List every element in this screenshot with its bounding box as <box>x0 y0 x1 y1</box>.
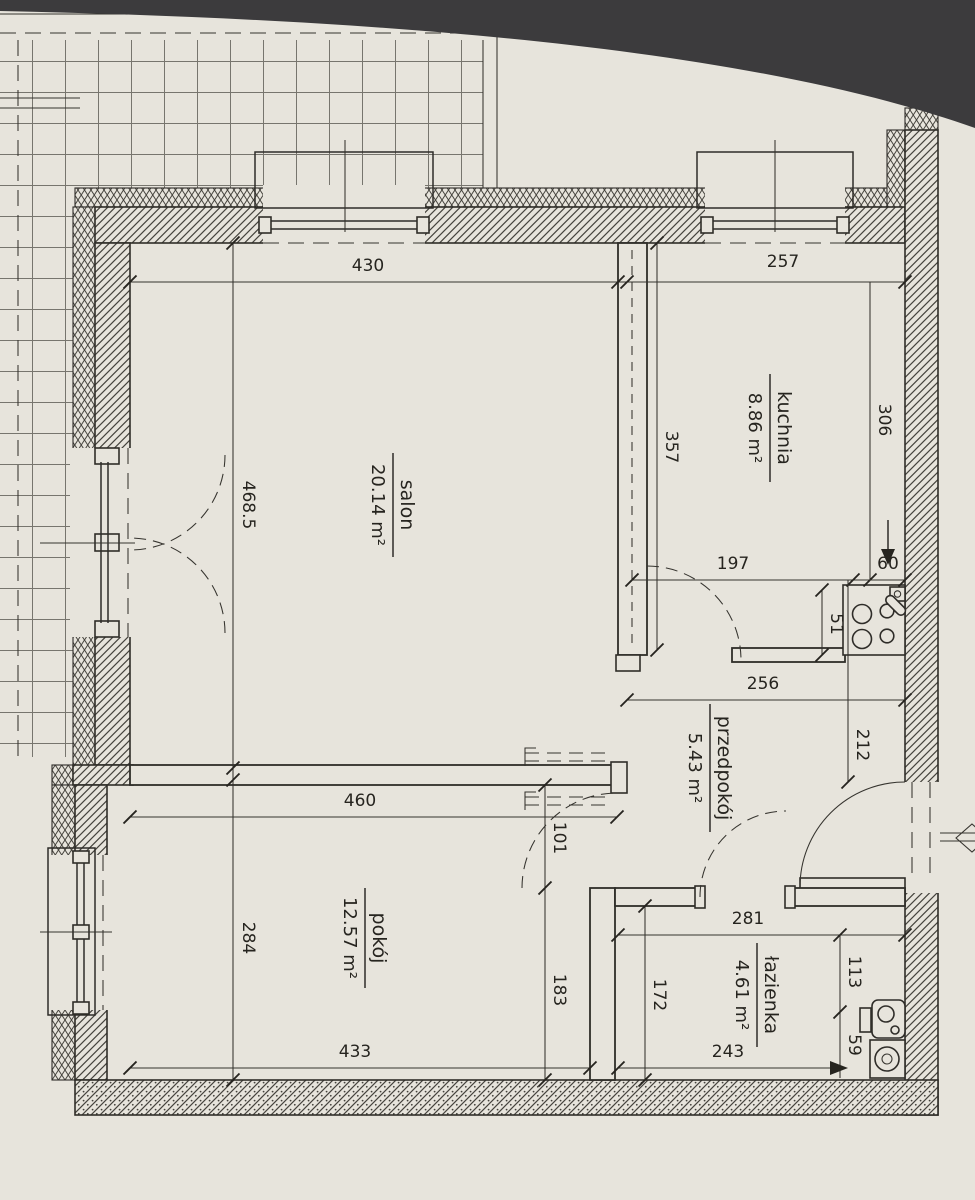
dim-label-468-5: 468.5 <box>238 481 258 530</box>
floor-plan-photo: 430 257 306 357 468.5 284 460 <box>0 0 975 1200</box>
dim-label-183: 183 <box>549 974 569 1006</box>
room-area: 8.86 m² <box>744 393 765 464</box>
wall-bottom <box>75 1080 938 1115</box>
washing-machine-icon <box>870 1040 905 1078</box>
dim-label-101: 101 <box>549 822 569 854</box>
room-name: łazienka <box>760 956 782 1034</box>
room-area: 20.14 m² <box>367 464 388 546</box>
dim-label-51: 51 <box>826 613 846 635</box>
room-name: przedpokój <box>713 716 735 821</box>
dim-label-284: 284 <box>238 922 258 954</box>
room-area: 12.57 m² <box>339 897 360 979</box>
wall-pokoj-lazienka <box>590 888 615 1080</box>
dim-label-59: 59 <box>844 1034 864 1056</box>
dim-label-430: 430 <box>352 256 384 276</box>
room-area: 4.61 m² <box>731 960 752 1031</box>
floor-plan-canvas: 430 257 306 357 468.5 284 460 <box>0 0 975 1200</box>
dim-label-306: 306 <box>874 404 894 436</box>
dim-label-357: 357 <box>661 431 681 463</box>
wall-lazienka-right-seg <box>790 888 905 906</box>
wall-left-junction <box>73 765 133 785</box>
dim-label-257: 257 <box>767 252 799 272</box>
dim-label-433: 433 <box>339 1042 371 1062</box>
dim-label-172: 172 <box>649 979 669 1011</box>
dim-label-281: 281 <box>732 909 764 929</box>
pokoj-window <box>40 848 112 1015</box>
room-name: kuchnia <box>773 391 795 465</box>
dim-label-113: 113 <box>844 956 864 988</box>
wall-salon-pokoj <box>130 765 617 785</box>
kitchen-counter <box>843 585 907 655</box>
wall-lazienka-left-seg <box>615 888 700 906</box>
dim-label-243: 243 <box>712 1042 744 1062</box>
dim-label-197: 197 <box>717 554 749 574</box>
room-area: 5.43 m² <box>684 733 705 804</box>
dim-label-460: 460 <box>344 791 376 811</box>
room-name: pokój <box>368 913 390 964</box>
room-name: salon <box>396 480 418 531</box>
dim-label-256: 256 <box>747 674 779 694</box>
dim-label-212: 212 <box>852 729 872 761</box>
